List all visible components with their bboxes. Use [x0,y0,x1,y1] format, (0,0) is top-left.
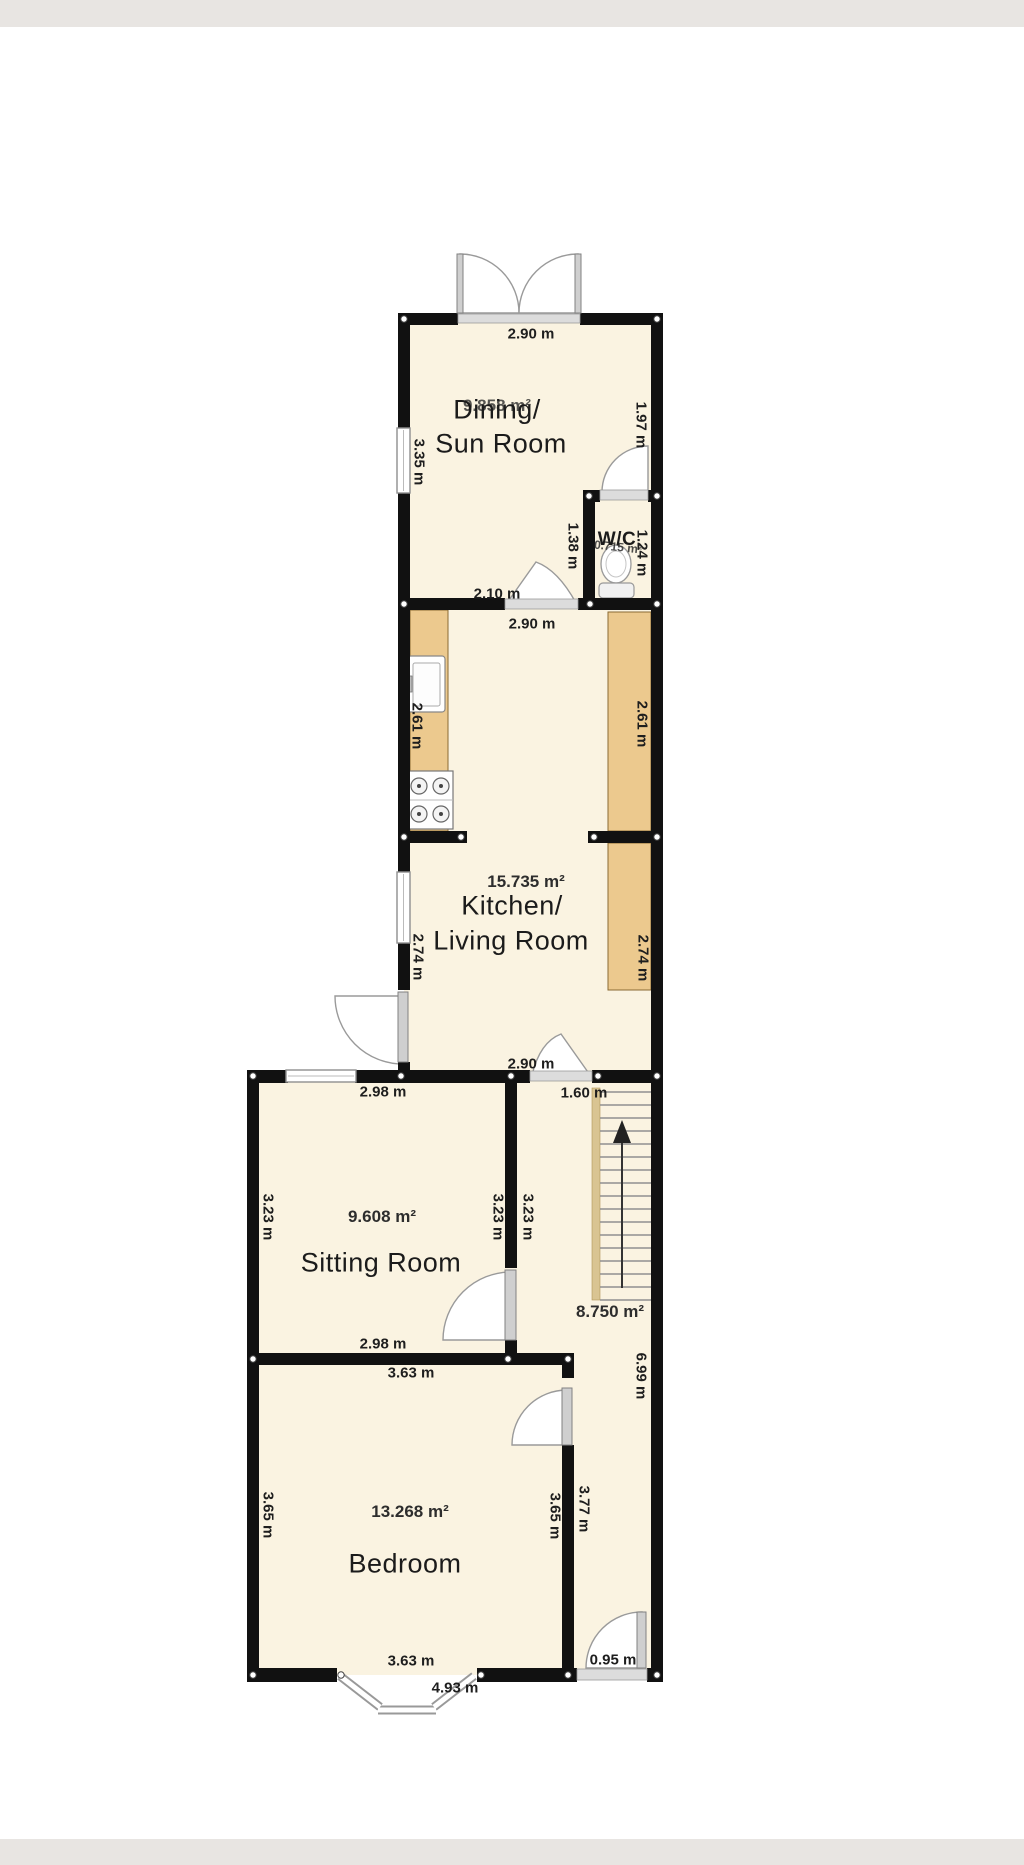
room-label-kitchen-line2: Living Room [433,926,589,957]
dim-hall-height-bedroom: 3.77 m [576,1486,593,1533]
stove-icon [407,771,453,829]
bedroom-door-leaf [562,1388,572,1445]
dim-hall-width-top: 1.60 m [561,1085,608,1102]
dim-dining-height-left: 3.35 m [411,439,428,486]
dim-wc-nook-height: 1.38 m [565,523,582,570]
dim-dining-width-bottom: 2.10 m [474,586,521,603]
dim-dining-height-right: 1.97 m [633,402,650,449]
room-label-dining-line2: Sun Room [435,429,567,460]
room-label-sitting: Sitting Room [301,1248,462,1279]
dim-hall-height-lower: 6.99 m [633,1353,650,1400]
side-door-arc [335,996,403,1064]
room-label-bedroom: Bedroom [348,1549,461,1580]
dim-bedroom-height-right: 3.65 m [547,1493,564,1540]
dim-dining-width-top: 2.90 m [508,326,555,343]
floor-plan-page: 9.858 m² Dining/ Sun Room 2.90 m 1.97 m … [0,0,1024,1865]
dim-sitting-height-right: 3.23 m [490,1194,507,1241]
sitting-door-leaf [505,1270,516,1340]
bedroom-area-label: 13.268 m² [371,1502,449,1522]
dim-bedroom-width-top: 3.63 m [388,1365,435,1382]
kitchen-window [397,872,410,943]
room-label-wc: W/C [598,529,636,551]
windows [286,428,410,1082]
dining-window [397,428,410,493]
sitting-area-label: 9.608 m² [348,1207,416,1227]
french-door-right-arc [519,254,578,313]
dim-kitchen-upper-height-left: 2.61 m [409,703,426,750]
dim-kitchen-width-top: 2.90 m [509,616,556,633]
dim-sitting-height-left: 3.23 m [260,1194,277,1241]
dim-hall-height-upper: 3.23 m [520,1194,537,1241]
dim-kitchen-upper-height-right: 2.61 m [634,701,651,748]
french-door-left-leaf [457,254,463,313]
dim-bay-window-width: 4.93 m [432,1680,479,1697]
room-floors [253,319,657,1675]
dim-bedroom-height-left: 3.65 m [260,1492,277,1539]
french-door-right-leaf [575,254,581,313]
sitting-room-window [286,1070,356,1082]
hall-area-label: 8.750 m² [576,1302,644,1322]
dim-bedroom-width-bottom: 3.63 m [388,1653,435,1670]
room-label-dining-line1: Dining/ [453,395,541,426]
kitchen-area-label: 15.735 m² [487,872,565,892]
dim-wc-height: 1.24 m [634,530,651,577]
dim-sitting-width-bottom: 2.98 m [360,1336,407,1353]
front-door-leaf [637,1612,646,1668]
dim-kitchen-width-bottom: 2.90 m [508,1056,555,1073]
side-door-leaf [398,992,408,1062]
dim-front-door-width: 0.95 m [590,1652,637,1669]
dim-kitchen-lower-height-left: 2.74 m [410,934,427,981]
dim-kitchen-lower-height-right: 2.74 m [635,935,652,982]
dim-sitting-width-top: 2.98 m [360,1084,407,1101]
room-label-kitchen-line1: Kitchen/ [461,891,563,922]
french-door-left-arc [460,254,519,313]
